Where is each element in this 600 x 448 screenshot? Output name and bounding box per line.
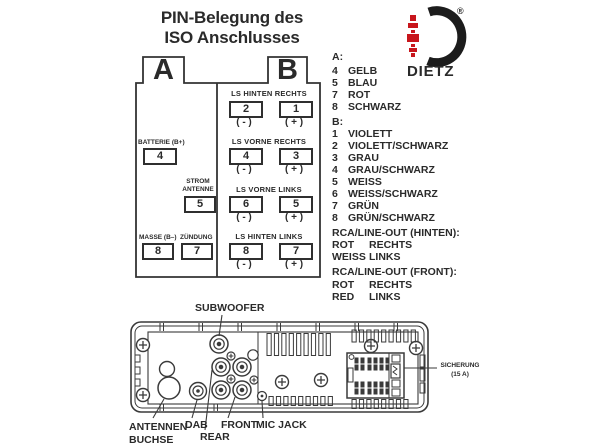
rca-color: ROT (332, 240, 369, 251)
mic-jack-icon (258, 392, 267, 401)
rear-rca-jack-icon (212, 358, 230, 376)
rca-side: LINKS (369, 291, 401, 303)
legend-item: 4GELB (332, 66, 377, 77)
rca-side: RECHTS (369, 239, 412, 251)
pin-b7: 7 (279, 243, 313, 260)
legend-item: 5WEISS (332, 177, 382, 188)
brand-name: DIETZ (407, 63, 454, 80)
legend-item: 6WEISS/SCHWARZ (332, 189, 438, 200)
wire-pin: 4 (332, 165, 348, 176)
wire-color: BLAU (348, 77, 377, 89)
battery-label: BATTERIE (B+) (138, 139, 185, 146)
pin-b4: 4 (229, 148, 263, 165)
rca-side: LINKS (369, 251, 401, 263)
antenna-label-line1: ANTENNEN- (129, 421, 191, 433)
screw-icon (315, 374, 328, 387)
wire-color: ROT (348, 89, 370, 101)
speaker-row-label: LS VORNE RECHTS (225, 137, 313, 146)
rca-row: REDLINKS (332, 292, 401, 303)
screw-icon (137, 389, 150, 402)
screw-icon (137, 339, 150, 352)
minus-sign: ( - ) (227, 164, 261, 175)
rca-rear-heading: RCA/LINE-OUT (HINTEN): (332, 228, 460, 239)
legend-item: 8SCHWARZ (332, 102, 401, 113)
screw-icon (410, 342, 423, 355)
page-title-line1: PIN-Belegung des (138, 8, 326, 28)
iso-power-connector-block (347, 353, 404, 398)
minus-sign: ( - ) (227, 259, 261, 270)
legend-item: 8GRÜN/SCHWARZ (332, 213, 435, 224)
front-rca-jack-icon (233, 358, 251, 376)
strom-antenne-label: STROM ANTENNE (178, 178, 218, 194)
pin-b5: 5 (279, 196, 313, 213)
rca-side: RECHTS (369, 279, 412, 291)
masse-label: MASSE (B–) (139, 234, 177, 241)
wire-pin: 5 (332, 78, 348, 89)
rca-color: RED (332, 292, 369, 303)
legend-item: 2VIOLETT/SCHWARZ (332, 141, 448, 152)
legend-item: 3GRAU (332, 153, 379, 164)
dab-jack-icon (190, 383, 207, 400)
plus-sign: ( + ) (277, 212, 311, 223)
wire-pin: 7 (332, 201, 348, 212)
legend-item: 1VIOLETT (332, 129, 392, 140)
legend-item: 7GRÜN (332, 201, 379, 212)
wire-color: WEISS (348, 176, 382, 188)
blank-hole (248, 350, 258, 360)
front-rca-jack-icon (233, 381, 251, 399)
rca-row: ROTRECHTS (332, 280, 412, 291)
zuendung-label: ZÜNDUNG (180, 234, 213, 241)
fuse-label-line1: SICHERUNG (438, 361, 482, 370)
pin-a5: 5 (184, 196, 216, 213)
iso-pinout-diagram: PIN-Belegung des ISO Anschlusses ® DIETZ… (0, 0, 600, 448)
wire-pin: 1 (332, 129, 348, 140)
wire-pin: 2 (332, 141, 348, 152)
registered-trademark-icon: ® (457, 6, 464, 16)
wire-color: GRAU (348, 152, 379, 164)
pin-a7: 7 (181, 243, 213, 260)
wire-color: WEISS/SCHWARZ (348, 188, 438, 200)
rear-rca-jack-icon (212, 381, 230, 399)
connector-a-letter: A (145, 57, 182, 84)
wire-pin: 8 (332, 102, 348, 113)
small-screw-icon (250, 376, 258, 384)
wire-color: VIOLETT/SCHWARZ (348, 140, 448, 152)
wire-color: GELB (348, 65, 377, 77)
speaker-row-label: LS HINTEN RECHTS (225, 89, 313, 98)
page-title-line2: ISO Anschlusses (138, 28, 326, 48)
rca-row: WEISSLINKS (332, 252, 401, 263)
wire-pin: 5 (332, 177, 348, 188)
wire-color: GRÜN/SCHWARZ (348, 212, 435, 224)
legend-b-heading: B: (332, 117, 343, 128)
legend-a-heading: A: (332, 52, 343, 63)
connector-b-letter: B (269, 57, 306, 84)
small-screw-icon (227, 352, 235, 360)
pin-b6: 6 (229, 196, 263, 213)
fuse-label-line2: (15 A) (438, 370, 482, 379)
wire-color: GRAU/SCHWARZ (348, 164, 435, 176)
legend-item: 7ROT (332, 90, 370, 101)
front-label: FRONT (221, 419, 257, 431)
page-title: PIN-Belegung des ISO Anschlusses (138, 8, 326, 48)
wire-pin: 8 (332, 213, 348, 224)
legend-item: 5BLAU (332, 78, 377, 89)
pin-a8: 8 (142, 243, 174, 260)
wire-pin: 3 (332, 153, 348, 164)
wire-pin: 4 (332, 66, 348, 77)
rear-label: REAR (200, 431, 230, 443)
wire-pin: 7 (332, 90, 348, 101)
plus-sign: ( + ) (277, 259, 311, 270)
plus-sign: ( + ) (277, 117, 311, 128)
wire-pin: 6 (332, 189, 348, 200)
plus-sign: ( + ) (277, 164, 311, 175)
minus-sign: ( - ) (227, 117, 261, 128)
rca-color: ROT (332, 280, 369, 291)
rca-color: WEISS (332, 252, 369, 263)
pin-b3: 3 (279, 148, 313, 165)
antenna-tower-icon (407, 15, 419, 57)
speaker-row-label: LS VORNE LINKS (225, 185, 313, 194)
pin-a4: 4 (143, 148, 177, 165)
antenna-jack-icon (158, 362, 180, 400)
rca-row: ROTRECHTS (332, 240, 412, 251)
pin-b2: 2 (229, 101, 263, 118)
antenna-label-line2: BUCHSE (129, 434, 173, 446)
dab-label: DAB (185, 419, 208, 431)
strom-label-line1: STROM (178, 178, 218, 186)
dietz-logo-mark (407, 11, 462, 63)
rca-front-heading: RCA/LINE-OUT (FRONT): (332, 267, 457, 278)
minus-sign: ( - ) (227, 212, 261, 223)
rear-panel-drawing (131, 315, 437, 430)
subwoofer-rca-jack-icon (210, 335, 228, 353)
legend-item: 4GRAU/SCHWARZ (332, 165, 435, 176)
wire-color: SCHWARZ (348, 101, 401, 113)
left-mount-strip (135, 355, 140, 386)
wire-color: VIOLETT (348, 128, 392, 140)
speaker-row-label: LS HINTEN LINKS (225, 232, 313, 241)
fuse-label: SICHERUNG (15 A) (438, 361, 482, 379)
strom-label-line2: ANTENNE (178, 186, 218, 194)
mic-jack-label: MIC JACK (256, 419, 307, 431)
wire-color: GRÜN (348, 200, 379, 212)
small-screw-icon (227, 375, 235, 383)
pin-b8: 8 (229, 243, 263, 260)
pin-b1: 1 (279, 101, 313, 118)
screw-icon (276, 376, 289, 389)
subwoofer-label: SUBWOOFER (195, 302, 264, 314)
